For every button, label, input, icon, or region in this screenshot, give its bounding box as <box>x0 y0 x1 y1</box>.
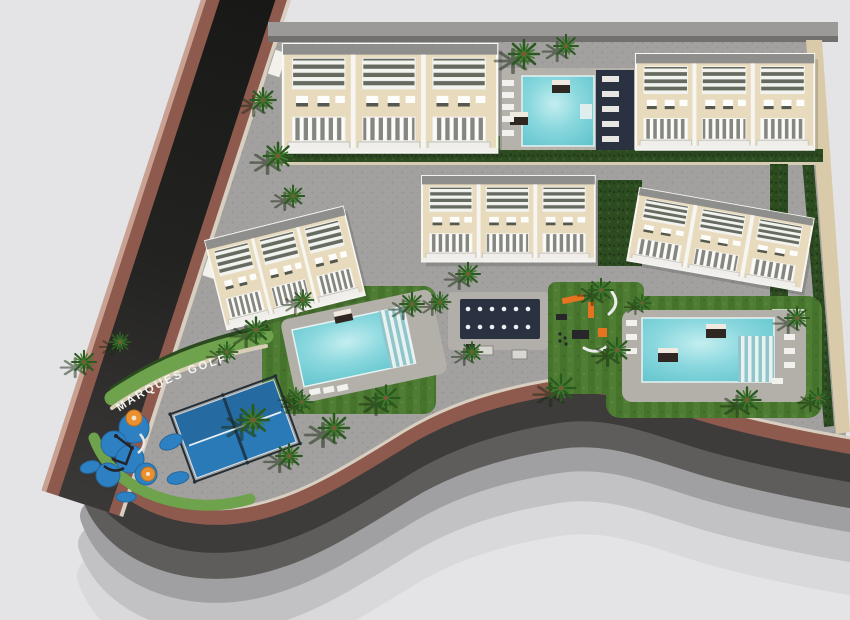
daybed-cushion <box>658 348 678 353</box>
play-structure-joint <box>114 434 118 438</box>
gym-mat <box>572 330 589 339</box>
picnic-table <box>478 346 493 355</box>
residential-block-north-east <box>636 54 818 155</box>
residential-block-north-west <box>283 44 502 158</box>
gym-box <box>598 328 607 337</box>
curb-strip-north <box>283 162 823 165</box>
navy-rug <box>460 299 540 339</box>
gym-bench <box>556 314 567 320</box>
play-circle-dot <box>132 416 137 421</box>
north-pool-area <box>500 68 636 150</box>
daybed-cushion <box>706 324 726 329</box>
play-structure-joint <box>130 446 134 450</box>
pool-towel <box>580 104 592 119</box>
play-circle-dot <box>146 472 150 476</box>
site-plan-render: MARQUES GOLF <box>0 0 850 620</box>
site-plan-canvas: MARQUES GOLF <box>0 0 850 620</box>
daybed-cushion <box>552 80 570 85</box>
pool-steps <box>738 336 774 382</box>
picnic-table <box>512 350 527 359</box>
residential-block-center <box>422 176 599 266</box>
boundary-wall-shadow <box>268 36 838 42</box>
